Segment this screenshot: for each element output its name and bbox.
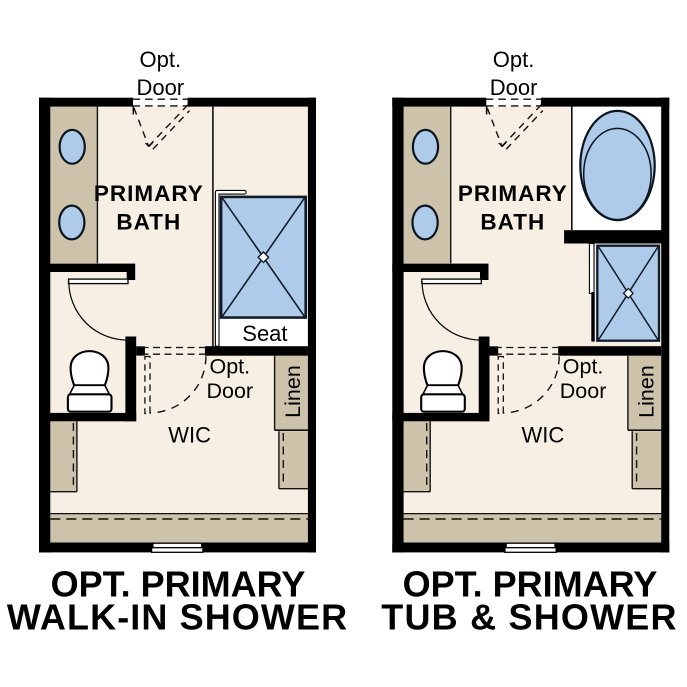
svg-text:Opt.: Opt. [563,355,604,379]
svg-text:Door: Door [206,379,253,403]
svg-text:Opt.: Opt. [209,355,250,379]
svg-text:Seat: Seat [242,321,287,346]
svg-text:Linen: Linen [281,365,305,418]
svg-text:Door: Door [490,75,538,100]
svg-text:WIC: WIC [522,422,565,447]
svg-text:Opt.: Opt. [493,47,535,72]
svg-text:Door: Door [560,379,607,403]
svg-text:BATH: BATH [480,209,545,234]
svg-text:PRIMARY: PRIMARY [94,181,204,206]
svg-text:Linen: Linen [634,365,658,418]
svg-text:WALK-IN SHOWER: WALK-IN SHOWER [7,596,348,637]
svg-text:BATH: BATH [116,209,181,234]
svg-text:PRIMARY: PRIMARY [458,181,568,206]
svg-text:TUB & SHOWER: TUB & SHOWER [381,596,677,637]
svg-text:Opt.: Opt. [140,47,182,72]
svg-text:WIC: WIC [168,422,211,447]
svg-text:Door: Door [136,75,184,100]
